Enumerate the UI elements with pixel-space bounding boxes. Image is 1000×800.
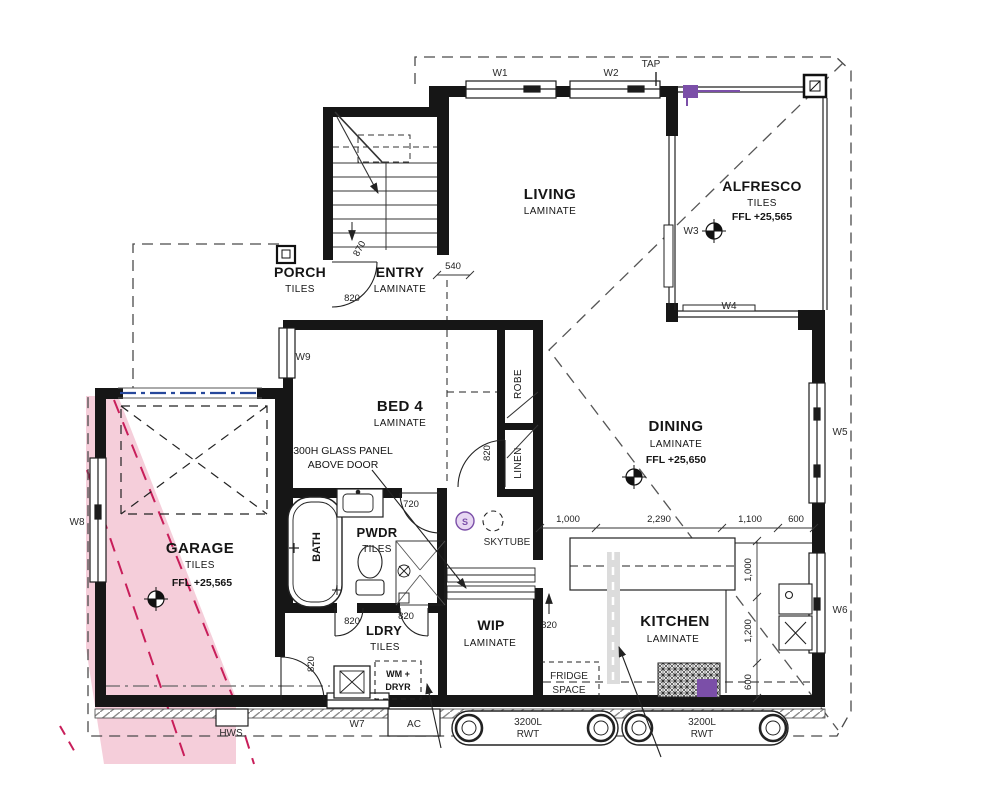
window-w5 <box>809 383 825 503</box>
living-finish: LAMINATE <box>524 206 576 217</box>
kitchen-sink <box>658 663 720 697</box>
w5-label: W5 <box>833 427 848 438</box>
alfresco-finish: TILES <box>747 198 777 209</box>
floor-plan-drawing: LIVING LAMINATE ALFRESCO TILES FFL +25,5… <box>0 0 1000 800</box>
garage-door <box>118 388 262 398</box>
meter-box <box>683 85 740 106</box>
pwdr-finish: TILES <box>362 544 392 555</box>
dim-820-garage: 820 <box>306 656 317 672</box>
alfresco-post <box>804 75 826 97</box>
tank1-label-2: RWT <box>517 729 540 740</box>
w4-label: W4 <box>722 301 737 312</box>
alfresco-ffl: FFL +25,565 <box>732 211 792 223</box>
hws-unit <box>216 709 248 726</box>
tank1-label-1: 3200L <box>514 717 542 728</box>
dim-h-4: 600 <box>788 514 804 525</box>
hws-label: HWS <box>219 728 243 739</box>
wip-finish: LAMINATE <box>464 638 516 649</box>
garage-finish: TILES <box>185 560 215 571</box>
glass-panel-note-1: 300H GLASS PANEL <box>293 445 393 457</box>
dim-540: 540 <box>445 261 461 272</box>
dim-820-entry: 820 <box>344 293 360 304</box>
bed4-label: BED 4 <box>377 398 423 415</box>
w8-label: W8 <box>70 517 85 528</box>
dining-label: DINING <box>649 418 704 435</box>
garage-label: GARAGE <box>166 540 234 557</box>
w2-label: W2 <box>604 68 619 79</box>
ac-label: AC <box>407 719 421 730</box>
window-w1 <box>466 81 556 98</box>
vanity <box>337 489 383 517</box>
ldry-finish: TILES <box>370 642 400 653</box>
dim-870: 870 <box>351 239 368 258</box>
glass-panel-note-2: ABOVE DOOR <box>308 459 379 471</box>
w7-label: W7 <box>350 719 365 730</box>
w9-label: W9 <box>296 352 311 363</box>
dim-820-ldry2: 820 <box>398 611 414 622</box>
garage-ffl: FFL +25,565 <box>172 577 232 589</box>
kitchen-finish: LAMINATE <box>647 634 699 645</box>
kitchen-island <box>570 538 735 590</box>
fridge-label-2: SPACE <box>552 685 585 696</box>
dim-820-linen: 820 <box>482 445 493 461</box>
wm-label: WM + <box>386 669 410 679</box>
ldry-label: LDRY <box>366 623 402 638</box>
cooktop-oven <box>779 584 812 650</box>
tank2-label-2: RWT <box>691 729 714 740</box>
w3-label: W3 <box>684 226 699 237</box>
entry-label: ENTRY <box>376 264 425 280</box>
annotation-labels: 300H GLASS PANEL ABOVE DOOR <box>293 445 393 471</box>
porch-post <box>277 246 295 263</box>
staircase <box>333 112 437 250</box>
wip-shelves <box>447 568 535 599</box>
pwdr-label: PWDR <box>357 525 398 540</box>
alfresco-label: ALFRESCO <box>722 178 801 194</box>
alfresco-walls <box>664 87 827 317</box>
laundry-tub <box>334 666 370 698</box>
driveway-edge-line-2 <box>60 726 76 754</box>
window-w9 <box>279 328 295 378</box>
porch-label: PORCH <box>274 264 326 280</box>
robe-label: ROBE <box>513 369 524 399</box>
dining-ffl: FFL +25,650 <box>646 454 706 466</box>
wip-label: WIP <box>477 617 504 633</box>
linen-label: LINEN <box>513 447 524 478</box>
bed4-finish: LAMINATE <box>374 418 426 429</box>
dim-820-ldry1: 820 <box>344 616 360 627</box>
ffl-marker-alfresco <box>702 219 726 243</box>
dim-v-2: 1,200 <box>743 619 754 643</box>
entry-finish: LAMINATE <box>374 284 426 295</box>
window-w8 <box>90 458 106 582</box>
dim-820-wip: 820 <box>541 620 557 631</box>
kitchen-label: KITCHEN <box>640 613 709 630</box>
dim-v-3: 600 <box>743 674 754 690</box>
dining-finish: LAMINATE <box>650 439 702 450</box>
garage-internal-door <box>281 657 324 700</box>
dryr-label: DRYR <box>385 682 411 692</box>
skytube-s: S <box>462 517 468 527</box>
dim-h-3: 1,100 <box>738 514 762 525</box>
ffl-marker-dining <box>622 465 646 489</box>
skytube-label: SKYTUBE <box>484 537 531 548</box>
porch-finish: TILES <box>285 284 315 295</box>
fridge-label-1: FRIDGE <box>550 671 588 682</box>
w1-label: W1 <box>493 68 508 79</box>
walls <box>95 86 825 707</box>
window-w2 <box>570 81 660 98</box>
living-label: LIVING <box>524 186 576 203</box>
w6-label: W6 <box>833 605 848 616</box>
dim-h-2: 2,290 <box>647 514 671 525</box>
floor-plan-sheet: LIVING LAMINATE ALFRESCO TILES FFL +25,5… <box>0 0 1000 800</box>
dim-v-1: 1,000 <box>743 558 754 582</box>
dim-720: 720 <box>403 499 419 510</box>
dim-h-1: 1,000 <box>556 514 580 525</box>
tank2-label-1: 3200L <box>688 717 716 728</box>
tap-label: TAP <box>642 59 661 70</box>
bath-label: BATH <box>311 532 323 562</box>
